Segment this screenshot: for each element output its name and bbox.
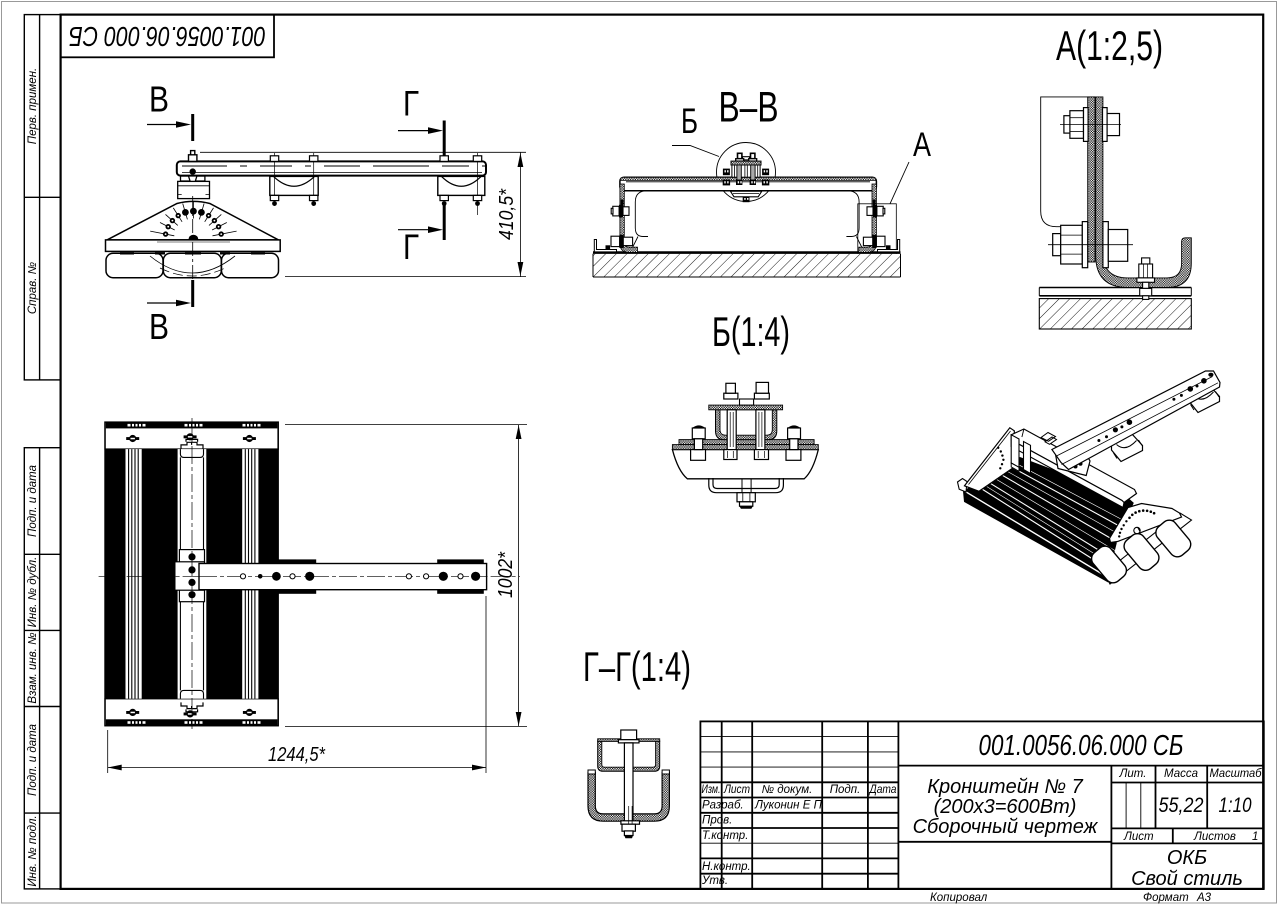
svg-text:Луконин Е П: Луконин Е П bbox=[754, 800, 823, 812]
svg-text:001.0056.06.000 СБ: 001.0056.06.000 СБ bbox=[69, 21, 266, 52]
svg-text:Подп.: Подп. bbox=[830, 784, 861, 796]
svg-text:Подп. и дата: Подп. и дата bbox=[27, 724, 39, 796]
svg-text:Г: Г bbox=[403, 228, 419, 267]
svg-text:Инв. № дубл.: Инв. № дубл. bbox=[27, 557, 39, 628]
svg-text:410,5*: 410,5* bbox=[496, 188, 518, 240]
svg-text:Дата: Дата bbox=[868, 784, 897, 796]
svg-text:Справ. №: Справ. № bbox=[27, 261, 39, 314]
svg-text:№ докум.: № докум. bbox=[762, 784, 813, 796]
svg-text:В: В bbox=[149, 306, 169, 347]
svg-text:Г: Г bbox=[403, 85, 419, 124]
svg-text:Свой стиль: Свой стиль bbox=[1131, 868, 1243, 890]
svg-text:55,22: 55,22 bbox=[1159, 794, 1204, 817]
svg-text:1: 1 bbox=[1252, 831, 1258, 843]
svg-text:Б(1:4): Б(1:4) bbox=[712, 308, 790, 355]
svg-text:ОКБ: ОКБ bbox=[1167, 847, 1207, 869]
svg-text:Подп. и дата: Подп. и дата bbox=[27, 465, 39, 537]
svg-text:А3: А3 bbox=[1196, 892, 1212, 904]
svg-text:Масштаб: Масштаб bbox=[1210, 768, 1263, 780]
svg-text:Разраб.: Разраб. bbox=[702, 800, 744, 812]
svg-text:Н.контр.: Н.контр. bbox=[702, 861, 751, 873]
svg-text:1002*: 1002* bbox=[495, 551, 517, 598]
svg-text:Листов: Листов bbox=[1193, 831, 1236, 843]
svg-text:Масса: Масса bbox=[1164, 768, 1198, 780]
svg-text:1:10: 1:10 bbox=[1219, 794, 1252, 817]
svg-text:А(1:2,5): А(1:2,5) bbox=[1056, 22, 1163, 69]
svg-text:Г–Г(1:4): Г–Г(1:4) bbox=[583, 643, 691, 690]
svg-text:1244,5*: 1244,5* bbox=[268, 744, 326, 766]
svg-text:Лит.: Лит. bbox=[1119, 768, 1147, 780]
svg-text:Взам. инв. №: Взам. инв. № bbox=[27, 632, 39, 704]
svg-text:Копировал: Копировал bbox=[930, 892, 988, 904]
svg-text:А: А bbox=[913, 126, 931, 164]
svg-text:Б: Б bbox=[681, 102, 698, 141]
svg-text:Кронштейн № 7: Кронштейн № 7 bbox=[927, 776, 1083, 798]
svg-text:001.0056.06.000 СБ: 001.0056.06.000 СБ bbox=[979, 730, 1184, 762]
svg-text:Формат: Формат bbox=[1143, 892, 1189, 904]
svg-text:Сборочный чертеж: Сборочный чертеж bbox=[913, 816, 1099, 838]
svg-text:Инв. № подл.: Инв. № подл. bbox=[27, 815, 39, 886]
svg-text:Лист: Лист bbox=[1123, 831, 1154, 843]
svg-text:В–В: В–В bbox=[719, 84, 779, 132]
svg-text:В: В bbox=[149, 79, 169, 120]
svg-text:Лист: Лист bbox=[723, 784, 750, 796]
svg-text:Т.контр.: Т.контр. bbox=[702, 830, 748, 842]
svg-text:(200х3=600Вт): (200х3=600Вт) bbox=[934, 796, 1077, 818]
svg-text:Изм.: Изм. bbox=[702, 784, 721, 796]
svg-text:Перв. примен.: Перв. примен. bbox=[27, 68, 39, 144]
svg-text:Пров.: Пров. bbox=[702, 815, 732, 827]
svg-text:Утв.: Утв. bbox=[701, 875, 728, 887]
